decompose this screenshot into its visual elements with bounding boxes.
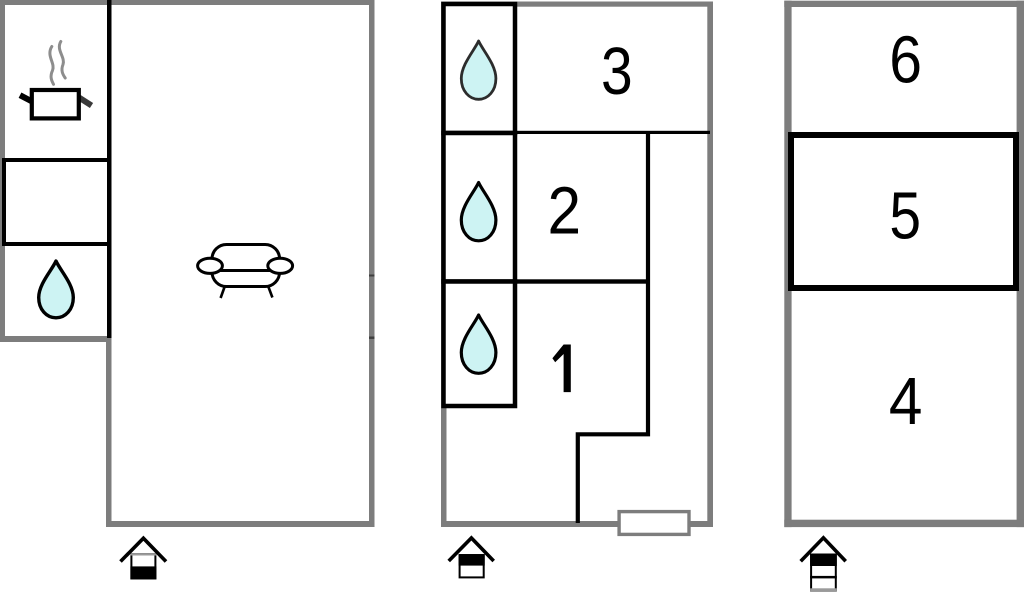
svg-text:4: 4 xyxy=(889,363,923,439)
svg-text:2: 2 xyxy=(548,173,582,249)
svg-text:5: 5 xyxy=(889,179,921,253)
svg-text:6: 6 xyxy=(889,23,922,97)
svg-text:3: 3 xyxy=(601,35,633,109)
